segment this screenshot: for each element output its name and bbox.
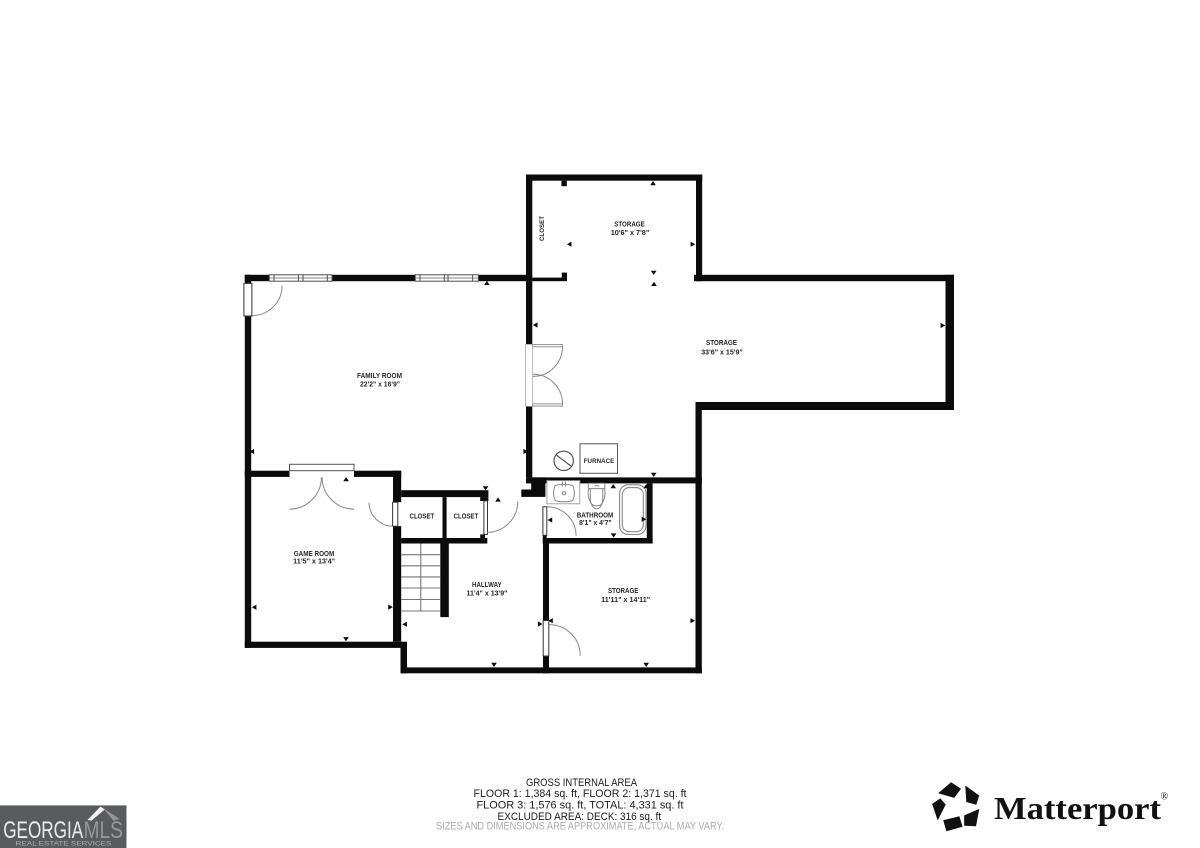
svg-text:STORAGE: STORAGE <box>614 222 645 229</box>
svg-text:SIZES AND DIMENSIONS ARE APPRO: SIZES AND DIMENSIONS ARE APPROXIMATE, AC… <box>436 821 724 833</box>
svg-text:FURNACE: FURNACE <box>584 458 615 465</box>
svg-text:8'1" x 4'7": 8'1" x 4'7" <box>579 520 612 527</box>
svg-text:FLOOR 1: 1,384 sq. ft, FLOOR 2: FLOOR 1: 1,384 sq. ft, FLOOR 2: 1,371 sq… <box>474 788 688 800</box>
svg-text:GAME ROOM: GAME ROOM <box>294 551 335 558</box>
svg-text:®: ® <box>1161 792 1169 803</box>
svg-text:11'4" x 13'9": 11'4" x 13'9" <box>467 591 508 598</box>
svg-text:11'5" x 13'4": 11'5" x 13'4" <box>293 558 335 565</box>
svg-text:FLOOR 3: 1,576 sq. ft, TOTAL:: FLOOR 3: 1,576 sq. ft, TOTAL: 4,331 sq. … <box>477 800 685 812</box>
svg-text:STORAGE: STORAGE <box>706 340 737 347</box>
svg-text:BATHROOM: BATHROOM <box>577 512 614 519</box>
svg-text:CLOSET: CLOSET <box>454 513 479 520</box>
svg-text:11'11" x 14'11": 11'11" x 14'11" <box>601 597 650 604</box>
svg-text:CLOSET: CLOSET <box>410 513 435 520</box>
svg-text:STORAGE: STORAGE <box>608 588 639 595</box>
svg-text:CLOSET: CLOSET <box>539 215 546 241</box>
svg-text:22'2" x 16'9": 22'2" x 16'9" <box>360 381 400 388</box>
svg-text:FAMILY ROOM: FAMILY ROOM <box>357 373 402 380</box>
svg-text:GROSS INTERNAL AREA: GROSS INTERNAL AREA <box>526 777 637 789</box>
svg-text:HALLWAY: HALLWAY <box>472 582 502 589</box>
svg-text:Matterport: Matterport <box>994 790 1161 826</box>
svg-text:REAL ESTATE SERVICES: REAL ESTATE SERVICES <box>16 841 112 848</box>
svg-text:33'6" x 15'9": 33'6" x 15'9" <box>701 350 743 357</box>
svg-text:10'6" x 7'8": 10'6" x 7'8" <box>611 230 650 237</box>
